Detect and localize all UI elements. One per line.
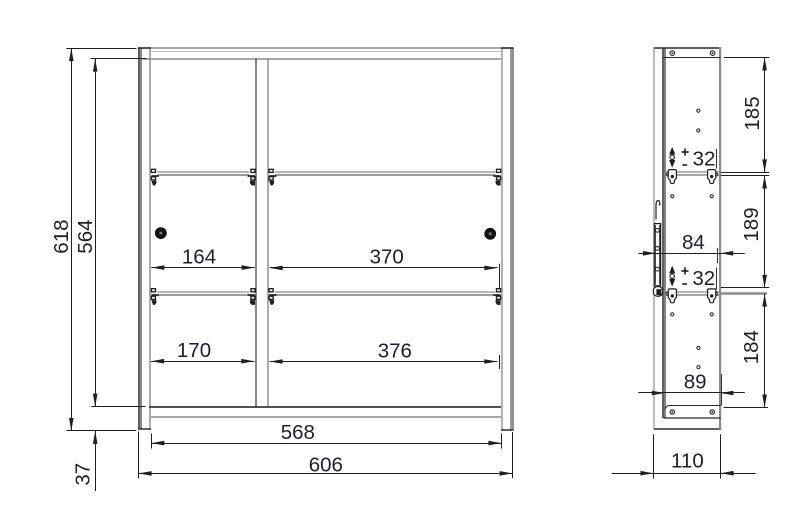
- svg-text:370: 370: [370, 245, 404, 268]
- svg-text:164: 164: [182, 245, 216, 268]
- svg-text:32: 32: [693, 148, 716, 171]
- svg-text:170: 170: [177, 339, 211, 362]
- svg-text:32: 32: [692, 267, 715, 290]
- svg-text:189: 189: [740, 207, 763, 241]
- svg-text:37: 37: [72, 463, 95, 486]
- svg-text:564: 564: [74, 219, 97, 253]
- svg-text:89: 89: [684, 371, 707, 394]
- svg-text:568: 568: [281, 421, 315, 444]
- svg-text:184: 184: [740, 330, 763, 364]
- svg-text:185: 185: [741, 96, 764, 130]
- svg-text:84: 84: [682, 231, 705, 254]
- svg-text:606: 606: [309, 453, 343, 476]
- svg-text:618: 618: [50, 219, 73, 253]
- svg-text:376: 376: [378, 340, 412, 363]
- svg-text:110: 110: [671, 449, 704, 472]
